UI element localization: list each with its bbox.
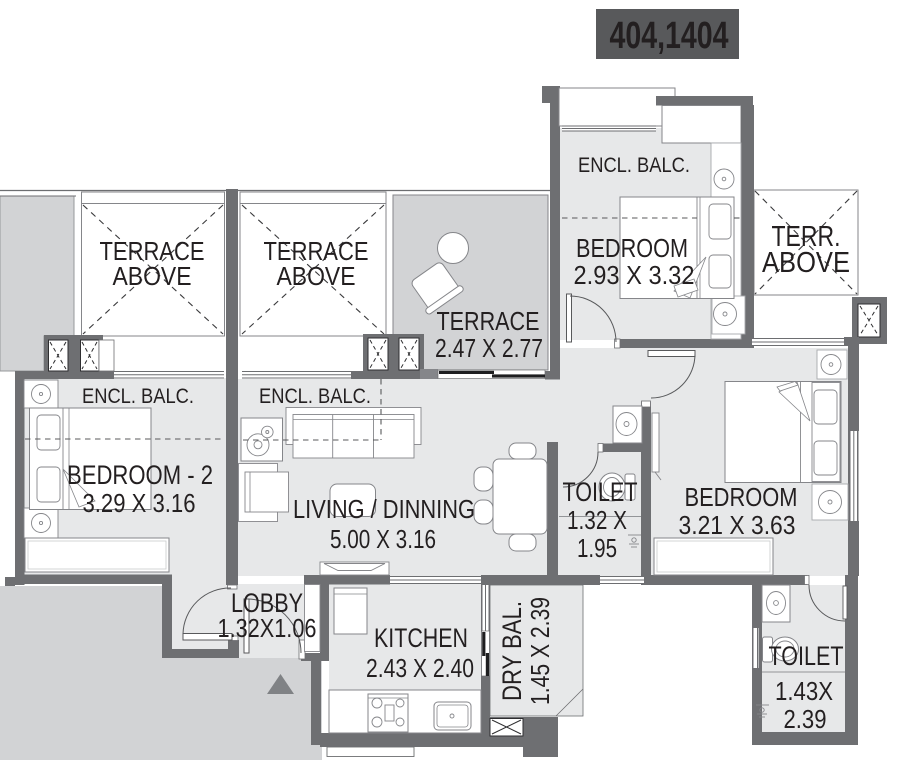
svg-text:BEDROOM: BEDROOM — [685, 482, 798, 512]
svg-text:2.43 X 2.40: 2.43 X 2.40 — [366, 653, 474, 683]
svg-text:ABOVE: ABOVE — [762, 247, 850, 279]
svg-text:404,1404: 404,1404 — [610, 15, 729, 57]
svg-text:1.45 X 2.39: 1.45 X 2.39 — [525, 597, 555, 705]
svg-text:ENCL. BALC.: ENCL. BALC. — [578, 154, 690, 177]
svg-text:2.39: 2.39 — [784, 704, 827, 734]
svg-text:2.47 X 2.77: 2.47 X 2.77 — [435, 333, 543, 363]
svg-text:DRY BAL.: DRY BAL. — [497, 601, 527, 701]
svg-text:3.21 X 3.63: 3.21 X 3.63 — [679, 510, 796, 540]
svg-text:1.32 X: 1.32 X — [567, 505, 627, 535]
svg-text:BEDROOM - 2: BEDROOM - 2 — [67, 460, 213, 490]
svg-text:1.95: 1.95 — [577, 533, 617, 563]
svg-text:ENCL. BALC.: ENCL. BALC. — [259, 385, 371, 408]
svg-text:5.00 X 3.16: 5.00 X 3.16 — [330, 524, 436, 554]
svg-text:2.93 X 3.32: 2.93 X 3.32 — [574, 260, 695, 290]
svg-text:ABOVE: ABOVE — [113, 261, 192, 291]
svg-text:KITCHEN: KITCHEN — [374, 623, 468, 653]
svg-text:ENCL. BALC.: ENCL. BALC. — [82, 385, 194, 408]
svg-text:BEDROOM: BEDROOM — [576, 233, 688, 263]
svg-text:1.32X1.06: 1.32X1.06 — [218, 613, 317, 643]
svg-text:TERRACE: TERRACE — [437, 306, 540, 336]
svg-text:1.43X: 1.43X — [775, 676, 833, 706]
svg-text:TOILET: TOILET — [563, 477, 638, 507]
svg-text:LIVING / DINNING: LIVING / DINNING — [293, 494, 475, 524]
svg-text:ABOVE: ABOVE — [277, 261, 356, 291]
svg-text:TOILET: TOILET — [769, 641, 844, 671]
svg-text:3.29 X 3.16: 3.29 X 3.16 — [83, 488, 196, 518]
